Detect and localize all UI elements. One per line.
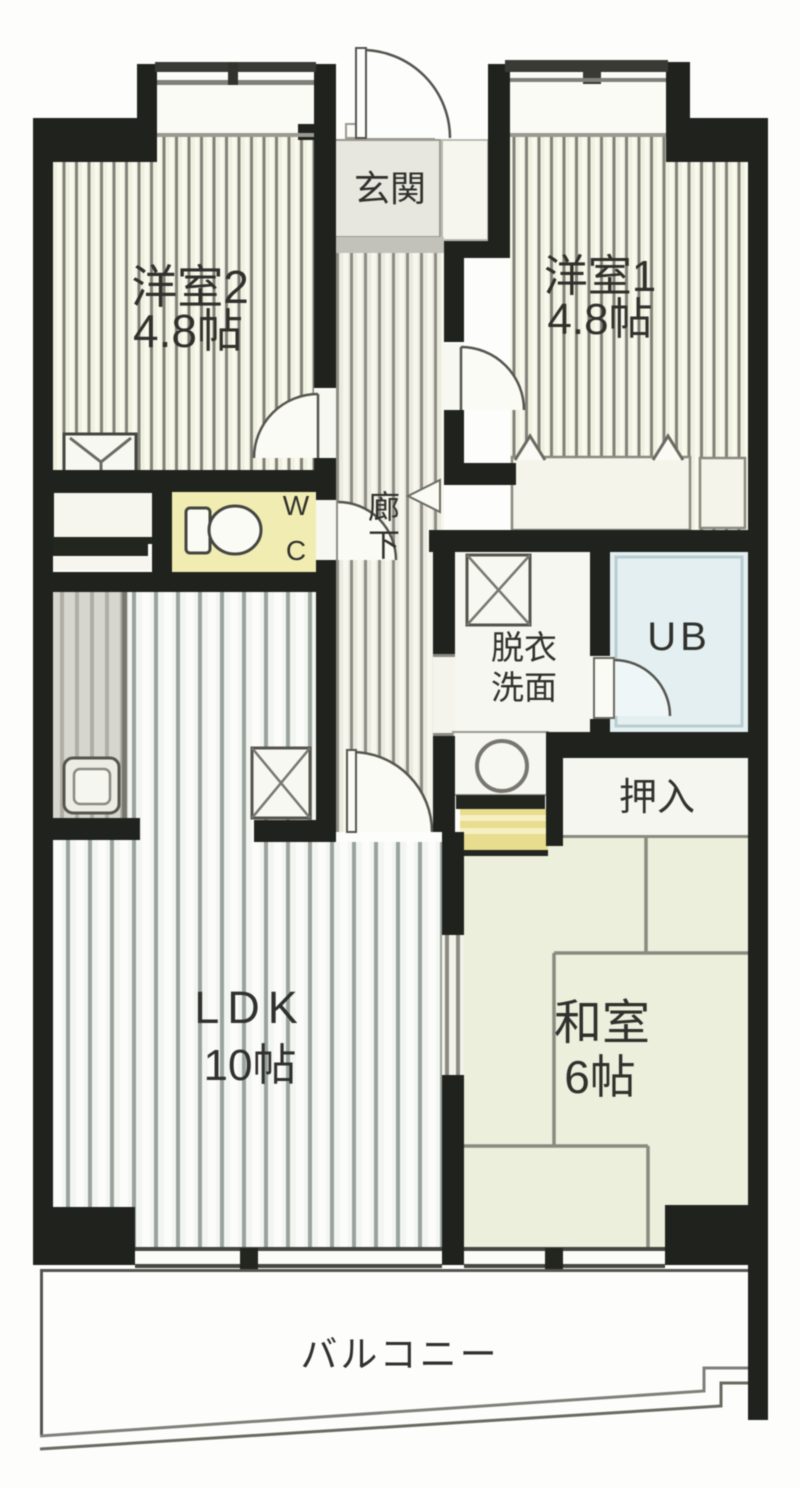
svg-text:下: 下 <box>368 527 400 563</box>
svg-text:玄関: 玄関 <box>354 168 426 209</box>
svg-text:UB: UB <box>647 615 711 659</box>
svg-text:4.8帖: 4.8帖 <box>133 305 243 357</box>
svg-text:洋室1: 洋室1 <box>544 252 656 301</box>
svg-text:6帖: 6帖 <box>564 1051 636 1103</box>
svg-text:4.8帖: 4.8帖 <box>547 295 652 344</box>
svg-text:和室: 和室 <box>554 997 650 1050</box>
svg-text:C: C <box>286 535 306 566</box>
svg-text:押入: 押入 <box>619 777 695 819</box>
svg-text:バルコニー: バルコニー <box>300 1334 499 1375</box>
svg-text:W: W <box>283 490 310 521</box>
svg-text:洗面: 洗面 <box>491 669 557 706</box>
svg-text:LDK: LDK <box>194 982 306 1033</box>
svg-text:脱衣: 脱衣 <box>491 629 557 666</box>
svg-text:10帖: 10帖 <box>204 1041 297 1090</box>
svg-text:廊: 廊 <box>368 489 400 525</box>
